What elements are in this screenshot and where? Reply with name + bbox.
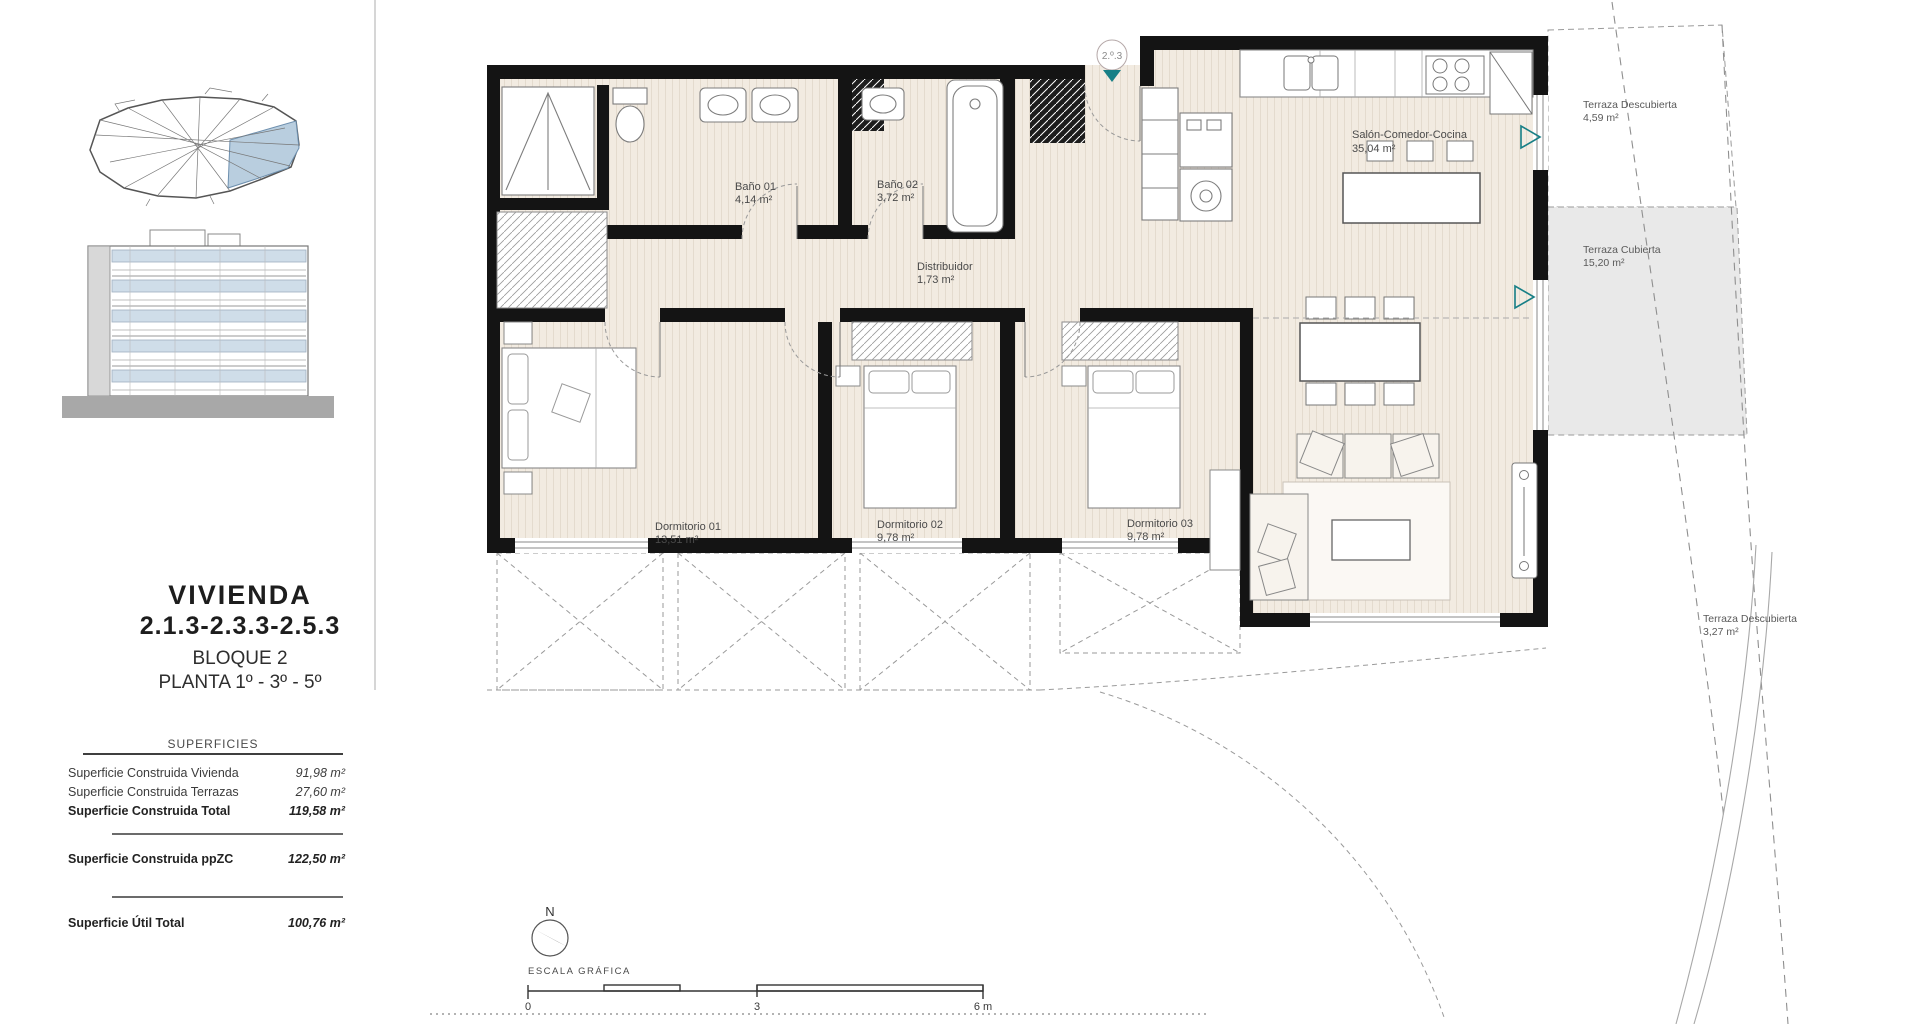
- surface-value: 100,76 m²: [288, 916, 345, 930]
- window-living-slider: [1310, 613, 1500, 627]
- surface-label: Superficie Construida Vivienda: [68, 766, 239, 780]
- svg-text:9,78 m²: 9,78 m²: [877, 532, 915, 544]
- graphic-scale: ESCALA GRÁFICA 0 3 6 m: [525, 966, 992, 1013]
- bathtub: [947, 80, 1003, 232]
- room-area: 9,78 m²: [1127, 531, 1165, 543]
- surface-row: Superficie Construida Vivienda 91,98 m²: [68, 766, 345, 780]
- svg-text:Distribuidor: Distribuidor: [917, 261, 973, 273]
- floors-label: PLANTA 1º - 3º - 5º: [60, 671, 420, 695]
- scale-title: ESCALA GRÁFICA: [528, 966, 631, 977]
- surface-value: 91,98 m²: [296, 766, 345, 780]
- scale-tick-3: 3: [754, 1001, 760, 1013]
- svg-text:3,72 m²: 3,72 m²: [877, 192, 915, 204]
- radiator: [1512, 463, 1537, 578]
- surface-label: Superficie Construida ppZC: [68, 852, 233, 866]
- unit-code: 2.1.3-2.3.3-2.5.3: [60, 611, 420, 641]
- svg-text:Baño 02: Baño 02: [877, 179, 918, 191]
- window-dorm01: [515, 538, 648, 553]
- window-terrace-door-2: [1533, 280, 1548, 430]
- terrace-name: Terraza Descubierta: [1703, 613, 1797, 625]
- room-area: 1,73 m²: [917, 274, 955, 286]
- kitchen-tall-unit: [1490, 52, 1532, 114]
- armchair: [1250, 494, 1308, 600]
- terrace-area: 15,20 m²: [1583, 257, 1625, 269]
- kitchen-island: [1343, 173, 1480, 223]
- window-terrace-door-1: [1533, 95, 1548, 170]
- svg-text:Terraza Descubierta: Terraza Descubierta: [1703, 613, 1797, 625]
- north-arrow-icon: N: [532, 904, 568, 956]
- surface-value: 122,50 m²: [288, 852, 345, 866]
- surface-row-util: Superficie Útil Total 100,76 m²: [68, 916, 345, 930]
- surface-label: Superficie Construida Total: [68, 804, 230, 818]
- bed-dorm01: [502, 322, 636, 494]
- surface-row-total: Superficie Construida Total 119,58 m²: [68, 804, 345, 818]
- surfaces-divider: [112, 833, 343, 835]
- svg-text:9,78 m²: 9,78 m²: [1127, 531, 1165, 543]
- svg-text:4,59 m²: 4,59 m²: [1583, 112, 1619, 124]
- svg-text:Dormitorio 03: Dormitorio 03: [1127, 518, 1193, 530]
- svg-text:Salón-Comedor-Cocina: Salón-Comedor-Cocina: [1352, 129, 1468, 141]
- mask-below-bedrooms: [487, 553, 1240, 693]
- svg-text:Terraza Cubierta: Terraza Cubierta: [1583, 244, 1661, 256]
- surface-value: 119,58 m²: [289, 804, 345, 818]
- room-area: 35,04 m²: [1352, 143, 1396, 155]
- terrace-area: 4,59 m²: [1583, 112, 1619, 124]
- room-name: Distribuidor: [917, 261, 973, 273]
- surface-label: Superficie Útil Total: [68, 916, 184, 930]
- room-name: Salón-Comedor-Cocina: [1352, 129, 1468, 141]
- surface-row: Superficie Construida Terrazas 27,60 m²: [68, 785, 345, 799]
- svg-text:Terraza Descubierta: Terraza Descubierta: [1583, 99, 1677, 111]
- room-name: Dormitorio 02: [877, 519, 943, 531]
- svg-text:Dormitorio 01: Dormitorio 01: [655, 521, 721, 533]
- svg-text:3,27 m²: 3,27 m²: [1703, 626, 1739, 638]
- elevation-ground: [62, 396, 334, 418]
- plan-drawing: 2.º.3 Baño 01 4,14 m² Baño 02 3,72 m² Di…: [0, 0, 1920, 1024]
- dorm03-desk: [1210, 470, 1240, 570]
- unit-title: VIVIENDA: [60, 580, 420, 611]
- room-area: 3,72 m²: [877, 192, 915, 204]
- block-label: BLOQUE 2: [60, 648, 420, 671]
- room-area: 4,14 m²: [735, 194, 773, 206]
- scale-tick-0: 0: [525, 1001, 531, 1013]
- building-elevation-thumbnail: [62, 230, 334, 418]
- north-label: N: [545, 904, 554, 919]
- terrace-name: Terraza Descubierta: [1583, 99, 1677, 111]
- mask-above-top-wall: [487, 20, 1140, 65]
- surface-label: Superficie Construida Terrazas: [68, 785, 239, 799]
- room-name: Dormitorio 01: [655, 521, 721, 533]
- shower: [502, 87, 594, 195]
- terrace-open-top: [1548, 25, 1736, 207]
- svg-text:35,04 m²: 35,04 m²: [1352, 143, 1396, 155]
- unit-marker-label: 2.º.3: [1102, 51, 1123, 62]
- svg-text:4,14 m²: 4,14 m²: [735, 194, 773, 206]
- title-block: VIVIENDA 2.1.3-2.3.3-2.5.3 BLOQUE 2 PLAN…: [60, 580, 420, 695]
- svg-text:15,20 m²: 15,20 m²: [1583, 257, 1625, 269]
- svg-text:13,51 m²: 13,51 m²: [655, 534, 699, 546]
- surfaces-rule: [83, 753, 343, 755]
- room-area: 9,78 m²: [877, 532, 915, 544]
- site-plan-thumbnail: [90, 88, 299, 206]
- svg-text:Baño 01: Baño 01: [735, 181, 776, 193]
- svg-text:Dormitorio 02: Dormitorio 02: [877, 519, 943, 531]
- surfaces-divider: [112, 896, 343, 898]
- coffee-table: [1332, 520, 1410, 560]
- kitchen-hob: [1426, 56, 1484, 94]
- surface-value: 27,60 m²: [296, 785, 345, 799]
- toilet: [613, 88, 647, 142]
- room-area: 13,51 m²: [655, 534, 699, 546]
- terrace-area: 3,27 m²: [1703, 626, 1739, 638]
- terrace-name: Terraza Cubierta: [1583, 244, 1661, 256]
- dining-set: [1300, 297, 1420, 405]
- terrace-covered: [1548, 207, 1747, 435]
- room-name: Dormitorio 03: [1127, 518, 1193, 530]
- room-name: Baño 02: [877, 179, 918, 191]
- shaft-hatched-2: [1030, 79, 1085, 143]
- dining-table: [1300, 323, 1420, 381]
- surface-row-ppzc: Superficie Construida ppZC 122,50 m²: [68, 852, 345, 866]
- scale-tick-6: 6 m: [974, 1001, 992, 1013]
- sink-bath02: [862, 88, 904, 120]
- surfaces-header: SUPERFICIES: [83, 737, 343, 751]
- floorplan-sheet: 2.º.3 Baño 01 4,14 m² Baño 02 3,72 m² Di…: [0, 0, 1920, 1024]
- svg-text:1,73 m²: 1,73 m²: [917, 274, 955, 286]
- room-name: Baño 01: [735, 181, 776, 193]
